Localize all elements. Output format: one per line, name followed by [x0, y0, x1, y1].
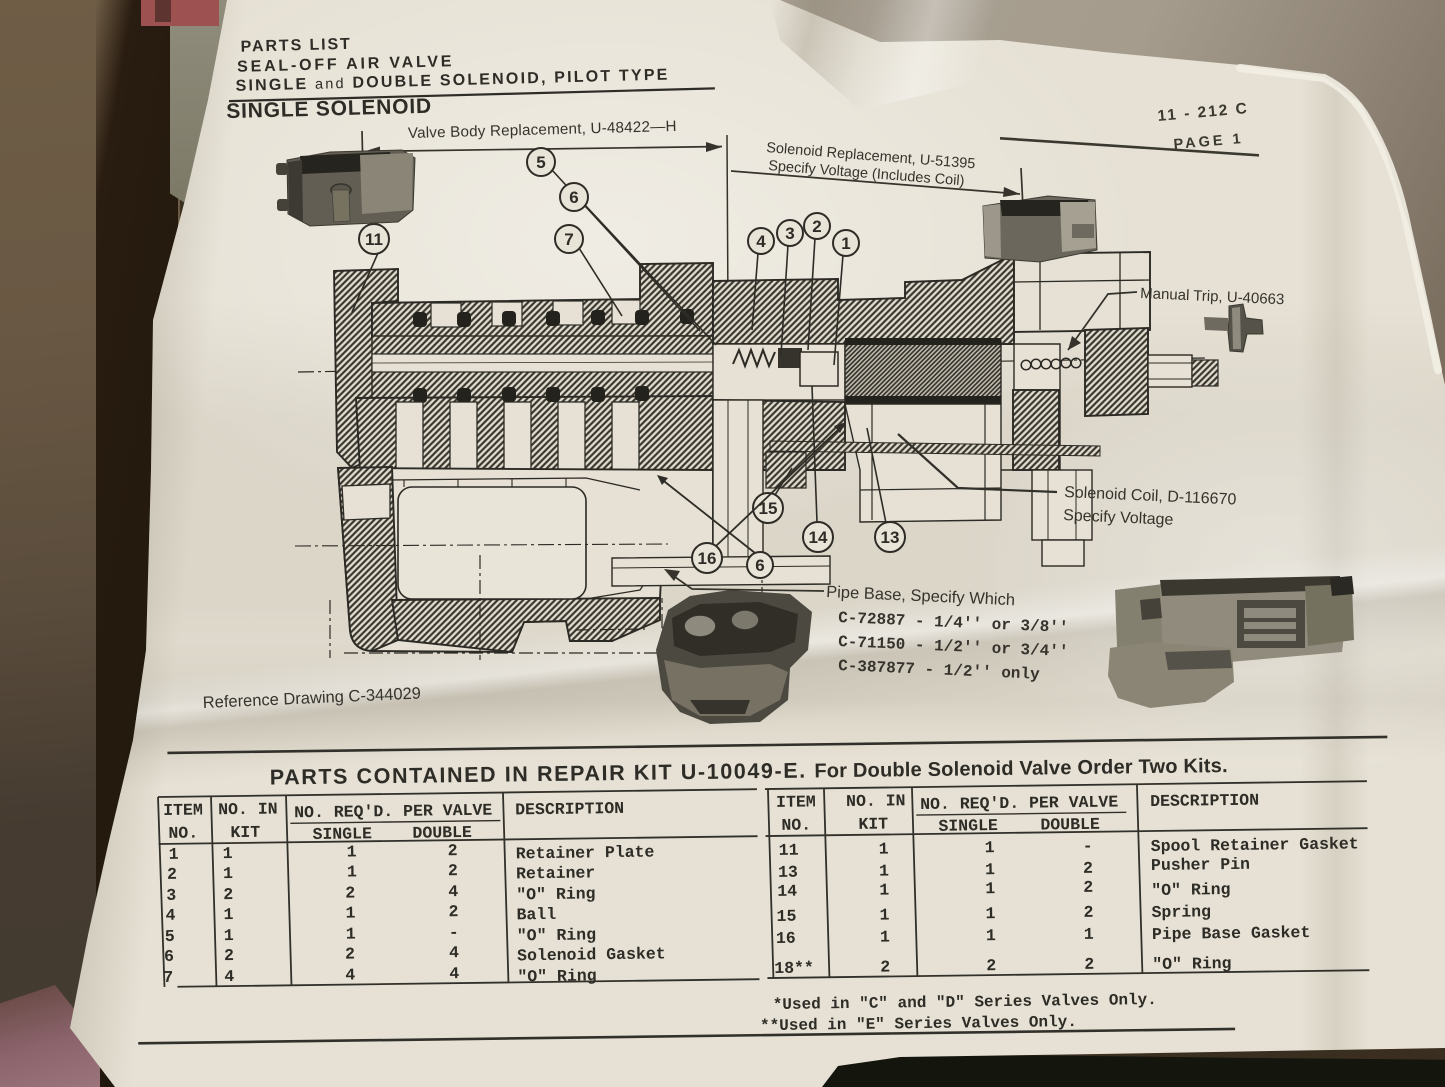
svg-text:2: 2	[448, 861, 458, 880]
svg-text:NO.: NO.	[168, 824, 198, 843]
svg-text:Spring: Spring	[1151, 902, 1211, 922]
svg-text:2: 2	[1083, 878, 1093, 897]
svg-text:1: 1	[986, 926, 996, 945]
svg-text:2: 2	[224, 946, 234, 965]
svg-text:1: 1	[879, 880, 889, 899]
svg-text:Reference Drawing C-344029: Reference Drawing C-344029	[202, 684, 421, 712]
svg-text:Pipe Base Gasket: Pipe Base Gasket	[1152, 923, 1311, 944]
svg-text:SINGLE: SINGLE	[312, 824, 372, 844]
svg-text:DOUBLE: DOUBLE	[1040, 815, 1100, 835]
svg-text:"O" Ring: "O" Ring	[1151, 880, 1230, 900]
svg-text:Retainer Plate: Retainer Plate	[516, 843, 655, 864]
svg-text:6: 6	[569, 188, 578, 207]
svg-text:KIT: KIT	[858, 814, 888, 833]
svg-text:"O" Ring: "O" Ring	[516, 884, 595, 904]
svg-text:2: 2	[448, 841, 458, 860]
svg-text:1: 1	[223, 905, 233, 924]
svg-text:C-387877 - 1/2'' only: C-387877 - 1/2'' only	[838, 657, 1041, 684]
svg-text:1: 1	[985, 860, 995, 879]
svg-text:NO. REQ'D. PER VALVE: NO. REQ'D. PER VALVE	[294, 801, 492, 823]
svg-text:16: 16	[698, 549, 717, 568]
svg-text:"O" Ring: "O" Ring	[517, 925, 596, 945]
svg-text:*Used in "C" and "D" Series Va: *Used in "C" and "D" Series Valves Only.	[773, 991, 1157, 1014]
svg-text:4: 4	[448, 882, 458, 901]
svg-text:11 - 212 C: 11 - 212 C	[1157, 100, 1250, 125]
svg-text:DOUBLE: DOUBLE	[412, 823, 472, 843]
svg-text:5: 5	[165, 927, 175, 946]
svg-text:Spool Retainer Gasket: Spool Retainer Gasket	[1151, 834, 1359, 856]
svg-text:C-71150 - 1/2'' or 3/4'': C-71150 - 1/2'' or 3/4''	[838, 633, 1069, 661]
svg-text:15: 15	[776, 907, 796, 926]
svg-text:1: 1	[169, 845, 179, 864]
svg-text:7: 7	[163, 968, 173, 987]
svg-text:3: 3	[166, 886, 176, 905]
svg-text:14: 14	[809, 528, 828, 547]
svg-text:2: 2	[448, 902, 458, 921]
svg-text:DESCRIPTION: DESCRIPTION	[1150, 791, 1259, 811]
svg-text:1: 1	[345, 903, 355, 922]
svg-text:Ball: Ball	[516, 905, 556, 925]
svg-text:1: 1	[1084, 925, 1094, 944]
svg-text:-: -	[1083, 837, 1093, 856]
svg-text:PARTS LIST: PARTS LIST	[240, 36, 352, 56]
svg-text:6: 6	[755, 556, 764, 575]
svg-text:4: 4	[449, 964, 459, 983]
svg-text:4: 4	[165, 906, 175, 925]
svg-text:KIT: KIT	[230, 823, 260, 842]
svg-text:NO. REQ'D. PER VALVE: NO. REQ'D. PER VALVE	[920, 792, 1118, 814]
svg-text:1: 1	[985, 879, 995, 898]
svg-text:2: 2	[223, 885, 233, 904]
svg-text:2: 2	[1084, 955, 1094, 974]
svg-text:C-72887 - 1/4'' or 3/8'': C-72887 - 1/4'' or 3/8''	[838, 609, 1069, 637]
svg-text:NO. IN: NO. IN	[218, 799, 278, 819]
svg-text:16: 16	[776, 929, 796, 948]
svg-text:2: 2	[345, 944, 355, 963]
svg-text:2: 2	[880, 957, 890, 976]
svg-text:4: 4	[756, 232, 766, 251]
svg-text:DESCRIPTION: DESCRIPTION	[515, 799, 624, 819]
svg-text:2: 2	[345, 883, 355, 902]
svg-text:1: 1	[347, 862, 357, 881]
svg-text:1: 1	[346, 924, 356, 943]
svg-text:Manual Trip, U-40663: Manual Trip, U-40663	[1140, 285, 1285, 308]
svg-text:ITEM: ITEM	[163, 800, 203, 820]
svg-text:1: 1	[879, 839, 889, 858]
svg-text:1: 1	[223, 864, 233, 883]
svg-text:Retainer: Retainer	[516, 863, 595, 883]
svg-text:1: 1	[224, 926, 234, 945]
svg-text:14: 14	[777, 882, 797, 901]
svg-text:2: 2	[1083, 903, 1093, 922]
svg-text:13: 13	[881, 528, 900, 547]
svg-text:1: 1	[841, 234, 850, 253]
svg-text:SINGLE SOLENOID: SINGLE SOLENOID	[226, 95, 432, 123]
svg-text:1: 1	[879, 861, 889, 880]
svg-text:4: 4	[449, 943, 459, 962]
svg-text:1: 1	[347, 842, 357, 861]
svg-text:6: 6	[164, 947, 174, 966]
svg-text:11: 11	[365, 230, 383, 249]
svg-text:7: 7	[564, 230, 573, 249]
svg-text:4: 4	[224, 967, 234, 986]
svg-text:2: 2	[986, 956, 996, 975]
svg-text:Solenoid Gasket: Solenoid Gasket	[517, 944, 666, 965]
svg-text:1: 1	[985, 838, 995, 857]
svg-text:Pusher Pin: Pusher Pin	[1151, 855, 1250, 875]
svg-text:SINGLE: SINGLE	[938, 816, 998, 836]
svg-text:"O" Ring: "O" Ring	[517, 966, 596, 986]
svg-text:1: 1	[880, 927, 890, 946]
svg-text:1: 1	[879, 905, 889, 924]
svg-text:2: 2	[812, 217, 821, 236]
svg-text:ITEM: ITEM	[776, 792, 816, 812]
svg-text:5: 5	[536, 153, 545, 172]
svg-text:2: 2	[167, 865, 177, 884]
svg-text:NO.: NO.	[781, 815, 811, 834]
svg-text:1: 1	[223, 844, 233, 863]
svg-text:4: 4	[345, 965, 355, 984]
svg-text:"O" Ring: "O" Ring	[1152, 954, 1231, 974]
svg-text:Pipe Base, Specify Which: Pipe Base, Specify Which	[826, 583, 1016, 609]
svg-text:1: 1	[985, 904, 995, 923]
svg-text:NO. IN: NO. IN	[846, 791, 906, 811]
svg-text:11: 11	[779, 841, 799, 860]
svg-text:3: 3	[785, 224, 794, 243]
svg-text:18**: 18**	[774, 958, 814, 978]
svg-text:13: 13	[778, 863, 798, 882]
svg-text:-: -	[449, 923, 459, 942]
svg-text:Valve Body Replacement, U-4842: Valve Body Replacement, U-48422—H	[408, 118, 677, 142]
svg-text:2: 2	[1083, 859, 1093, 878]
